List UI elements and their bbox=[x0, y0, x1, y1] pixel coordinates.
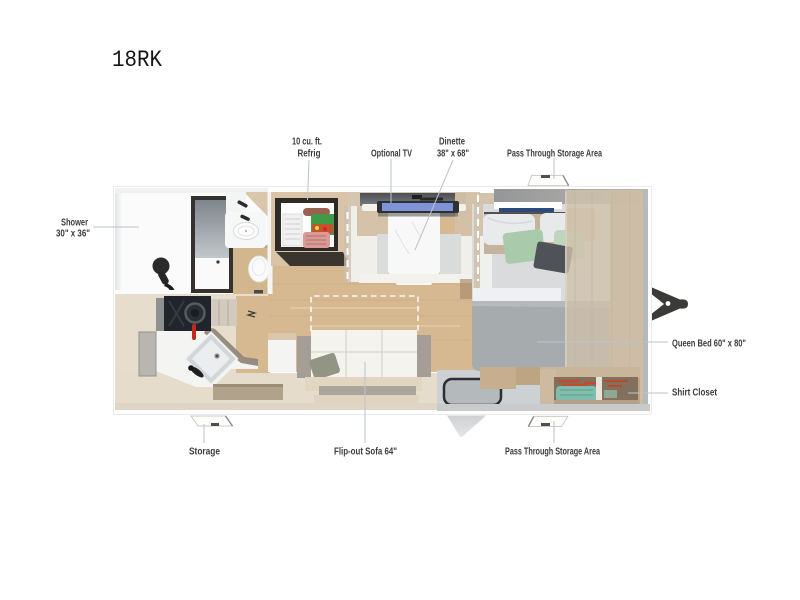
svg-text:Shirt Closet: Shirt Closet bbox=[672, 387, 717, 399]
svg-text:38" x 68": 38" x 68" bbox=[437, 148, 469, 160]
svg-text:18RK: 18RK bbox=[112, 47, 162, 73]
svg-text:30" x 36": 30" x 36" bbox=[56, 228, 90, 240]
svg-text:10 cu. ft.: 10 cu. ft. bbox=[292, 136, 322, 148]
svg-text:Queen Bed 60" x 80": Queen Bed 60" x 80" bbox=[672, 338, 746, 350]
svg-text:Dinette: Dinette bbox=[439, 136, 465, 148]
svg-text:Flip-out Sofa 64": Flip-out Sofa 64" bbox=[334, 446, 397, 458]
svg-text:Refrig: Refrig bbox=[298, 148, 321, 160]
svg-text:Pass Through Storage Area: Pass Through Storage Area bbox=[507, 148, 602, 160]
svg-text:Pass Through Storage Area: Pass Through Storage Area bbox=[505, 446, 600, 458]
svg-text:Optional TV: Optional TV bbox=[371, 148, 412, 160]
svg-text:Storage: Storage bbox=[189, 446, 220, 458]
